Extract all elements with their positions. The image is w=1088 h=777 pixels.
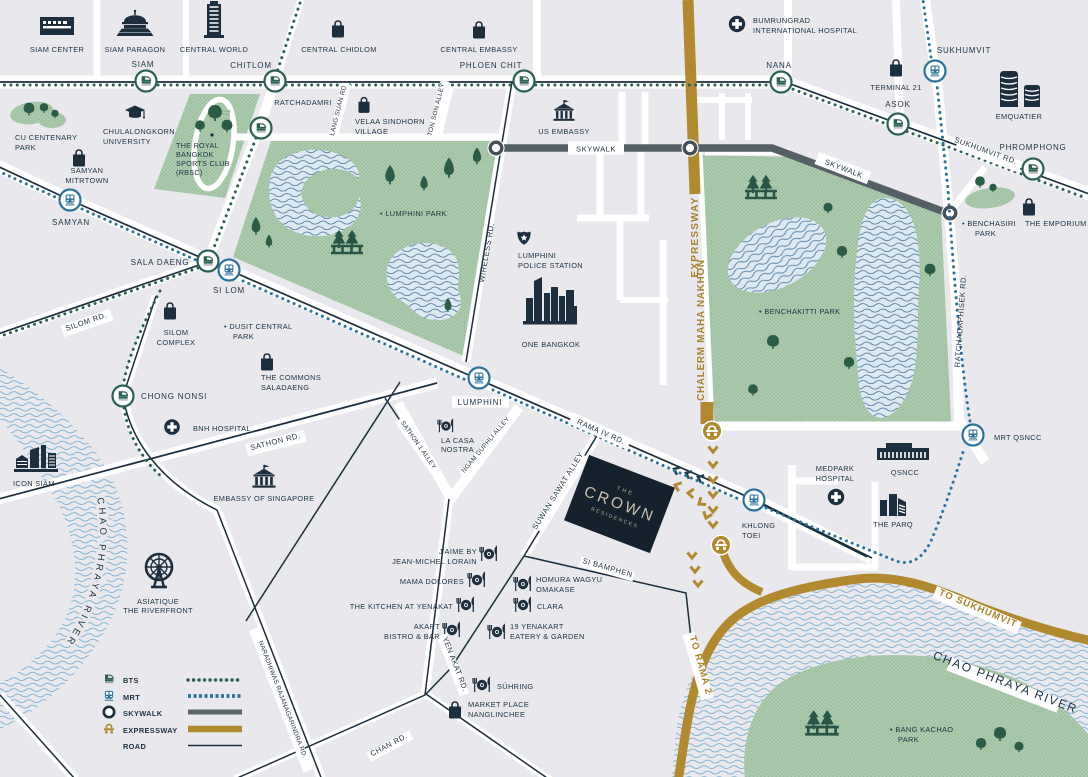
svg-text:THE COMMONS: THE COMMONS	[261, 373, 321, 382]
svg-text:MAMA DOLORES: MAMA DOLORES	[400, 577, 464, 586]
svg-text:MRT QSNCC: MRT QSNCC	[994, 433, 1042, 442]
svg-text:NANA: NANA	[766, 61, 791, 70]
svg-text:JEAN-MICHEL LORAIN: JEAN-MICHEL LORAIN	[392, 557, 477, 566]
svg-text:VILLAGE: VILLAGE	[355, 127, 388, 136]
svg-text:CLARA: CLARA	[537, 602, 563, 611]
svg-text:QSNCC: QSNCC	[891, 468, 920, 477]
svg-text:EXPRESSWAY: EXPRESSWAY	[123, 726, 178, 735]
svg-text:SAMYAN: SAMYAN	[71, 166, 104, 175]
svg-text:• LUMPHINI PARK: • LUMPHINI PARK	[380, 209, 447, 218]
svg-text:BNH HOSPITAL: BNH HOSPITAL	[193, 424, 251, 433]
svg-text:TOEI: TOEI	[742, 531, 761, 540]
svg-text:PARK: PARK	[15, 143, 36, 152]
svg-text:CHULALONGKORN: CHULALONGKORN	[103, 127, 175, 136]
svg-text:TERMINAL 21: TERMINAL 21	[870, 83, 921, 92]
svg-text:RATCHADAMRI: RATCHADAMRI	[274, 98, 332, 107]
svg-text:LUMPHINI: LUMPHINI	[458, 398, 503, 407]
svg-text:CENTRAL CHIDLOM: CENTRAL CHIDLOM	[301, 45, 377, 54]
svg-text:EMQUATIER: EMQUATIER	[996, 112, 1043, 121]
svg-text:ASIATIQUE: ASIATIQUE	[137, 597, 179, 606]
svg-text:• BENCHASIRI: • BENCHASIRI	[962, 219, 1016, 228]
svg-text:CHITLOM: CHITLOM	[230, 61, 272, 70]
svg-text:EMBASSY OF SINGAPORE: EMBASSY OF SINGAPORE	[214, 494, 315, 503]
svg-text:SALA DAENG: SALA DAENG	[131, 258, 190, 267]
svg-text:COMPLEX: COMPLEX	[157, 338, 196, 347]
svg-text:LUMPHINI: LUMPHINI	[518, 251, 556, 260]
svg-text:EXPRESSWAY: EXPRESSWAY	[690, 196, 701, 277]
svg-text:VELAA SINDHORN: VELAA SINDHORN	[355, 117, 425, 126]
svg-text:CENTRAL WORLD: CENTRAL WORLD	[180, 45, 248, 54]
svg-text:PARK: PARK	[975, 229, 996, 238]
svg-text:(RBSC): (RBSC)	[176, 168, 203, 177]
svg-text:PARK: PARK	[898, 735, 919, 744]
svg-text:MARKET PLACE: MARKET PLACE	[468, 700, 529, 709]
svg-text:SKYWALK: SKYWALK	[576, 145, 616, 154]
svg-text:• BENCHAKITTI PARK: • BENCHAKITTI PARK	[759, 307, 840, 316]
svg-text:SIAM CENTER: SIAM CENTER	[30, 45, 84, 54]
svg-text:SI LOM: SI LOM	[213, 286, 245, 295]
svg-text:US EMBASSY: US EMBASSY	[538, 127, 590, 136]
svg-text:• BANG KACHAO: • BANG KACHAO	[890, 725, 953, 734]
svg-text:• DUSIT CENTRAL: • DUSIT CENTRAL	[224, 322, 292, 331]
svg-text:THE KITCHEN AT YENAKAT: THE KITCHEN AT YENAKAT	[350, 602, 453, 611]
svg-text:LA CASA: LA CASA	[441, 436, 474, 445]
svg-text:SAMYAN: SAMYAN	[52, 218, 90, 227]
svg-text:THE PARQ: THE PARQ	[873, 520, 913, 529]
svg-text:BISTRO & BAR: BISTRO & BAR	[384, 632, 440, 641]
svg-text:NOSTRA: NOSTRA	[441, 445, 474, 454]
svg-text:NANGLINCHEE: NANGLINCHEE	[468, 710, 525, 719]
svg-text:THE ROYAL: THE ROYAL	[176, 141, 219, 150]
svg-text:ICON SIAM: ICON SIAM	[13, 479, 55, 488]
svg-text:ASOK: ASOK	[885, 100, 910, 109]
svg-text:ONE BANGKOK: ONE BANGKOK	[522, 340, 580, 349]
svg-text:HOMURA WAGYU: HOMURA WAGYU	[536, 575, 602, 584]
svg-text:J'AIME BY: J'AIME BY	[439, 547, 477, 556]
svg-text:THE EMPORIUM: THE EMPORIUM	[1025, 219, 1087, 228]
svg-text:ROAD: ROAD	[123, 742, 146, 751]
svg-text:MRT: MRT	[123, 693, 140, 702]
svg-text:HOSPITAL: HOSPITAL	[816, 474, 855, 483]
svg-text:EATERY & GARDEN: EATERY & GARDEN	[510, 632, 585, 641]
svg-text:SPORTS CLUB: SPORTS CLUB	[176, 159, 230, 168]
svg-text:SALADAENG: SALADAENG	[261, 383, 309, 392]
svg-text:CU CENTENARY: CU CENTENARY	[15, 133, 77, 142]
svg-text:THE RIVERFRONT: THE RIVERFRONT	[123, 606, 193, 615]
svg-text:SILOM: SILOM	[164, 328, 189, 337]
svg-text:19 YENAKART: 19 YENAKART	[510, 622, 564, 631]
svg-text:POLICE STATION: POLICE STATION	[518, 261, 583, 270]
svg-text:INTERNATIONAL HOSPITAL: INTERNATIONAL HOSPITAL	[753, 26, 857, 35]
svg-text:MEDPARK: MEDPARK	[816, 464, 854, 473]
svg-text:CHONG NONSI: CHONG NONSI	[141, 392, 207, 401]
svg-text:SIAM PARAGON: SIAM PARAGON	[105, 45, 166, 54]
svg-text:BANGKOK: BANGKOK	[176, 150, 214, 159]
svg-text:SIAM: SIAM	[132, 60, 155, 69]
svg-text:CENTRAL EMBASSY: CENTRAL EMBASSY	[440, 45, 517, 54]
svg-text:KHLONG: KHLONG	[742, 521, 775, 530]
svg-text:CHALERM MAHA NAKHON: CHALERM MAHA NAKHON	[696, 259, 707, 401]
svg-text:PARK: PARK	[233, 332, 254, 341]
svg-text:MITRTOWN: MITRTOWN	[65, 176, 108, 185]
svg-text:OMAKASE: OMAKASE	[536, 585, 575, 594]
svg-text:PHLOEN CHIT: PHLOEN CHIT	[460, 61, 523, 70]
svg-text:SÜHRING: SÜHRING	[497, 682, 534, 691]
svg-text:SKYWALK: SKYWALK	[123, 709, 163, 718]
svg-text:SUKHUMVIT: SUKHUMVIT	[937, 46, 991, 55]
svg-text:BTS: BTS	[123, 676, 139, 685]
svg-text:AKART: AKART	[414, 622, 440, 631]
svg-text:BUMRUNGRAD: BUMRUNGRAD	[753, 16, 810, 25]
svg-text:UNIVERSITY: UNIVERSITY	[103, 137, 151, 146]
svg-text:PHROMPHONG: PHROMPHONG	[999, 143, 1066, 152]
